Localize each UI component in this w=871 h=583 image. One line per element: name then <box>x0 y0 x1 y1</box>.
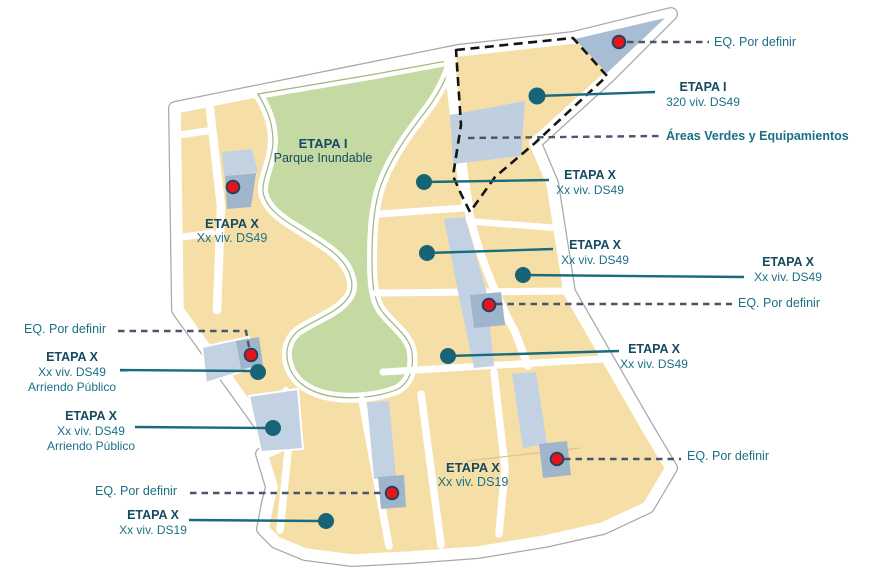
callout-etapa-x-2-subtitle: Xx viv. DS49 <box>548 253 642 268</box>
west-block-label: ETAPA X Xx viv. DS49 <box>172 216 292 246</box>
callout-etapa-x-1: ETAPA X Xx viv. DS49 <box>543 168 637 198</box>
west-block-subtitle: Xx viv. DS49 <box>172 231 292 246</box>
callout-ds19-title: ETAPA X <box>94 508 212 523</box>
teal-dot-marker <box>515 267 531 283</box>
red-dot-marker <box>551 453 564 466</box>
callout-eq-bottom-right: EQ. Por definir <box>687 449 769 464</box>
park-label: ETAPA I Parque Inundable <box>258 136 388 166</box>
south-block-label: ETAPA X Xx viv. DS19 <box>413 460 533 490</box>
callout-etapa-i-title: ETAPA I <box>655 80 751 95</box>
south-block-title: ETAPA X <box>413 460 533 475</box>
callout-arriendo-2-title: ETAPA X <box>32 409 150 424</box>
teal-dot-marker <box>250 364 266 380</box>
callout-etapa-x-ds19: ETAPA X Xx viv. DS19 <box>94 508 212 538</box>
teal-dot-marker <box>419 245 435 261</box>
callout-areas-verdes: Áreas Verdes y Equipamientos <box>666 129 849 144</box>
red-dot-marker <box>613 36 626 49</box>
callout-etapa-x-2: ETAPA X Xx viv. DS49 <box>548 238 642 268</box>
callout-etapa-i-subtitle: 320 viv. DS49 <box>655 95 751 110</box>
callout-etapa-x-2-title: ETAPA X <box>548 238 642 253</box>
callout-eq-top-right: EQ. Por definir <box>714 35 796 50</box>
callout-arriendo-2-line3: Arriendo Público <box>32 439 150 454</box>
callout-etapa-i: ETAPA I 320 viv. DS49 <box>655 80 751 110</box>
callout-etapa-x-3: ETAPA X Xx viv. DS49 <box>741 255 835 285</box>
red-dot-marker <box>227 181 240 194</box>
teal-dot-marker <box>416 174 432 190</box>
park-label-subtitle: Parque Inundable <box>258 151 388 166</box>
callout-etapa-x-4: ETAPA X Xx viv. DS49 <box>607 342 701 372</box>
callout-etapa-x-1-title: ETAPA X <box>543 168 637 183</box>
callout-etapa-x-3-subtitle: Xx viv. DS49 <box>741 270 835 285</box>
callout-etapa-x-arriendo-1: ETAPA X Xx viv. DS49 Arriendo Público <box>13 350 131 395</box>
callout-arriendo-1-line3: Arriendo Público <box>13 380 131 395</box>
teal-dot-marker <box>529 88 546 105</box>
masterplan-canvas: ETAPA I Parque Inundable ETAPA X Xx viv.… <box>0 0 871 583</box>
teal-dot-marker <box>440 348 456 364</box>
callout-arriendo-1-subtitle: Xx viv. DS49 <box>13 365 131 380</box>
callout-etapa-x-arriendo-2: ETAPA X Xx viv. DS49 Arriendo Público <box>32 409 150 454</box>
callout-etapa-x-1-subtitle: Xx viv. DS49 <box>543 183 637 198</box>
red-dot-marker <box>483 299 496 312</box>
south-block-subtitle: Xx viv. DS19 <box>413 475 533 490</box>
red-dot-marker <box>245 349 258 362</box>
teal-dot-marker <box>265 420 281 436</box>
callout-etapa-x-4-subtitle: Xx viv. DS49 <box>607 357 701 372</box>
callout-etapa-x-4-title: ETAPA X <box>607 342 701 357</box>
park-label-title: ETAPA I <box>258 136 388 151</box>
red-dot-marker <box>386 487 399 500</box>
callout-arriendo-2-subtitle: Xx viv. DS49 <box>32 424 150 439</box>
callout-eq-bottom-left: EQ. Por definir <box>95 484 177 499</box>
west-block-title: ETAPA X <box>172 216 292 231</box>
callout-ds19-subtitle: Xx viv. DS19 <box>94 523 212 538</box>
teal-dot-marker <box>318 513 334 529</box>
callout-arriendo-1-title: ETAPA X <box>13 350 131 365</box>
callout-eq-right: EQ. Por definir <box>738 296 820 311</box>
callout-eq-left: EQ. Por definir <box>24 322 106 337</box>
callout-etapa-x-3-title: ETAPA X <box>741 255 835 270</box>
